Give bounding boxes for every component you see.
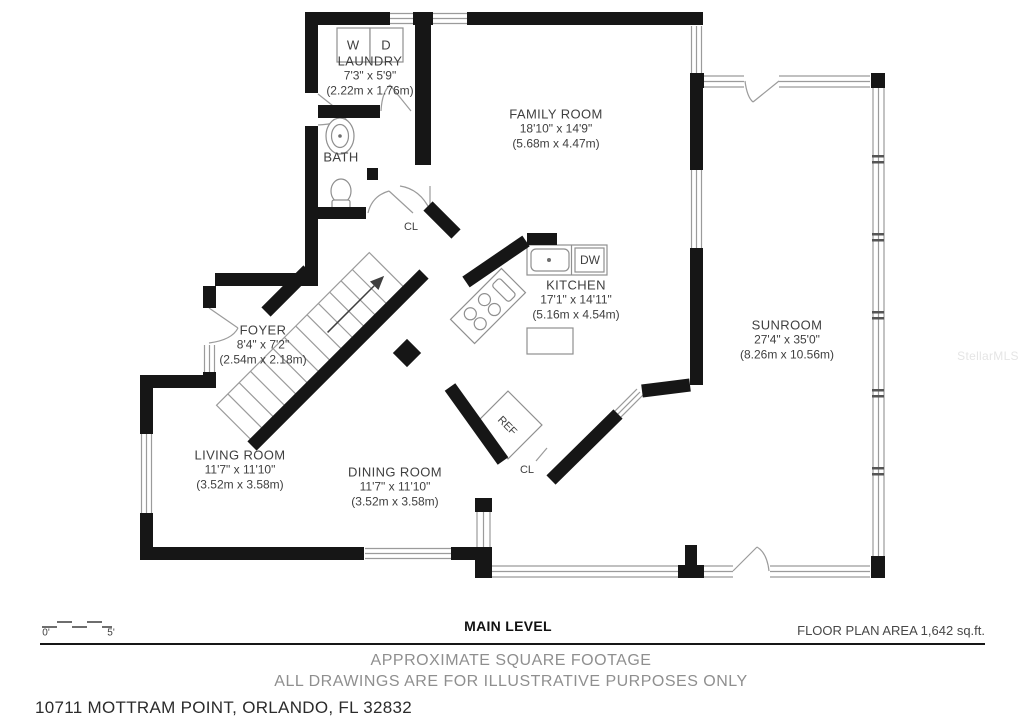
washer-label: W [347,38,359,53]
scale-end-label: 5' [107,628,114,639]
room-label-living: LIVING ROOM 11'7" x 11'10" (3.52m x 3.58… [194,448,285,493]
footer-divider [40,643,985,645]
hall-closet-door [400,186,430,210]
room-label-dining: DINING ROOM 11'7" x 11'10" (3.52m x 3.58… [348,465,442,510]
room-label-family: FAMILY ROOM 18'10" x 14'9" (5.68m x 4.47… [509,107,603,152]
scale-bar [42,622,112,627]
toilet-icon [331,179,351,210]
sunroom-bottom-door [733,547,769,571]
watermark: StellarMLS [957,349,1019,363]
bath-door [368,191,413,213]
column-icon [393,339,421,367]
floor-plan-area-note: FLOOR PLAN AREA 1,642 sq.ft. [797,623,985,638]
room-label-foyer: FOYER 8'4" x 7'2" (2.54m x 2.18m) [219,323,306,368]
kitchen-island-icon [527,328,573,354]
room-label-sunroom: SUNROOM 27'4" x 35'0" (8.26m x 10.56m) [740,318,834,363]
dining-closet-label: CL [520,464,534,476]
sunroom-top-door [745,81,779,102]
floor-plan-page: LAUNDRY 7'3" x 5'9" (2.22m x 1.76m) BATH… [0,0,1023,723]
room-label-kitchen: KITCHEN 17'1" x 14'11" (5.16m x 4.54m) [532,278,619,323]
disclaimer-line-1: APPROXIMATE SQUARE FOOTAGE [371,652,652,670]
stove-icon [451,269,526,344]
room-label-bath: BATH [323,150,358,165]
level-title: MAIN LEVEL [464,618,552,634]
disclaimer-line-2: ALL DRAWINGS ARE FOR ILLUSTRATIVE PURPOS… [274,673,747,691]
hall-closet-label: CL [404,221,418,233]
room-label-laundry: LAUNDRY 7'3" x 5'9" (2.22m x 1.76m) [326,54,413,99]
dryer-label: D [381,38,390,53]
scale-start-label: 0' [42,628,49,639]
dishwasher-label: DW [580,253,600,267]
dining-closet-door [536,448,547,461]
property-address: 10711 MOTTRAM POINT, ORLANDO, FL 32832 [35,698,412,718]
